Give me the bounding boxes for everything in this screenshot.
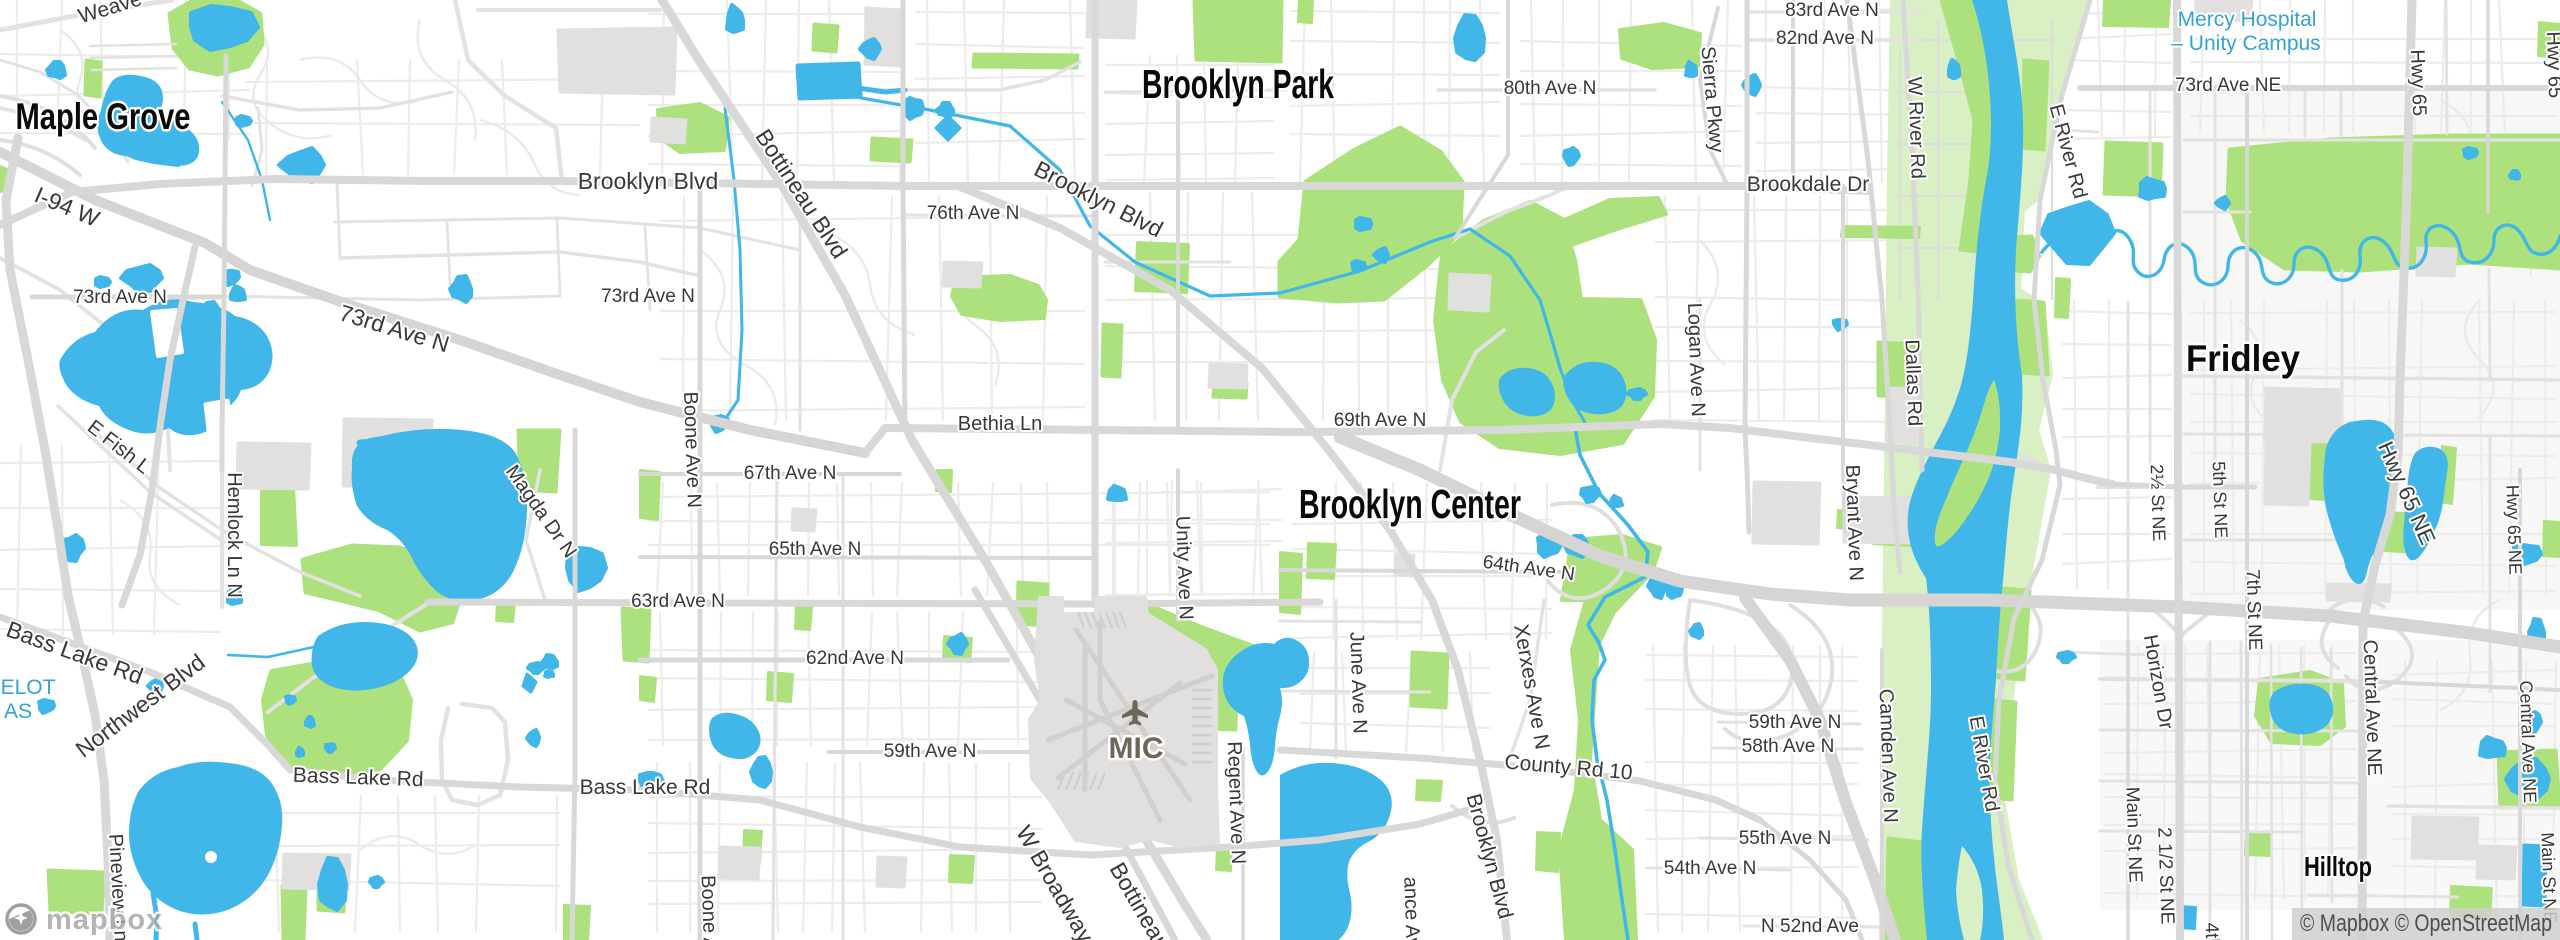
svg-text:Hemlock Ln N: Hemlock Ln N <box>223 472 245 598</box>
svg-text:Unity Ave N: Unity Ave N <box>1171 515 1197 620</box>
svg-text:– Unity Campus: – Unity Campus <box>2171 32 2320 55</box>
svg-text:73rd Ave N: 73rd Ave N <box>73 287 167 308</box>
svg-text:76th Ave N: 76th Ave N <box>927 203 1020 224</box>
svg-text:73rd Ave N: 73rd Ave N <box>601 286 695 307</box>
svg-text:4th: 4th <box>2201 922 2223 940</box>
svg-text:N 52nd Ave: N 52nd Ave <box>1761 916 1859 937</box>
svg-text:Hilltop: Hilltop <box>2304 851 2372 882</box>
svg-text:Brookdale Dr: Brookdale Dr <box>1747 173 1870 196</box>
svg-text:69th Ave N: 69th Ave N <box>1334 410 1427 431</box>
svg-text:Boone Av: Boone Av <box>697 875 722 940</box>
svg-text:Hwy 65: Hwy 65 <box>2542 31 2560 98</box>
svg-text:Brooklyn Blvd: Brooklyn Blvd <box>578 168 719 194</box>
svg-text:Mercy Hospital: Mercy Hospital <box>2178 8 2317 31</box>
svg-text:5th St NE: 5th St NE <box>2209 461 2232 539</box>
svg-text:Bass Lake Rd: Bass Lake Rd <box>580 776 711 799</box>
svg-text:55th Ave N: 55th Ave N <box>1739 828 1832 849</box>
svg-text:59th Ave N: 59th Ave N <box>1749 712 1842 733</box>
svg-text:Hwy 65: Hwy 65 <box>2406 49 2430 116</box>
svg-text:AS: AS <box>4 700 32 723</box>
svg-text:58th Ave N: 58th Ave N <box>1742 736 1835 757</box>
svg-text:ance Ave N: ance Ave N <box>1399 876 1425 940</box>
svg-text:Brooklyn Park: Brooklyn Park <box>1142 61 1334 107</box>
svg-text:2½ St NE: 2½ St NE <box>2147 464 2170 542</box>
svg-text:Central Ave NE: Central Ave NE <box>2516 680 2540 803</box>
svg-text:June Ave N: June Ave N <box>1345 631 1371 734</box>
svg-text:Logan Ave N: Logan Ave N <box>1683 302 1709 417</box>
svg-text:Fridley: Fridley <box>2186 338 2300 379</box>
svg-text:MIC: MIC <box>1109 732 1164 765</box>
svg-text:Boone Ave N: Boone Ave N <box>679 391 705 508</box>
svg-text:Main St NE: Main St NE <box>2121 786 2145 883</box>
svg-text:2 1/2 St NE: 2 1/2 St NE <box>2153 827 2177 925</box>
svg-text:67th Ave N: 67th Ave N <box>744 463 837 484</box>
svg-text:54th Ave N: 54th Ave N <box>1664 858 1757 879</box>
svg-text:Camden Ave N: Camden Ave N <box>1875 688 1902 823</box>
svg-text:62nd Ave N: 62nd Ave N <box>806 648 904 669</box>
svg-text:Brooklyn Center: Brooklyn Center <box>1299 481 1521 527</box>
svg-text:63rd Ave N: 63rd Ave N <box>631 591 725 612</box>
svg-text:65th Ave N: 65th Ave N <box>769 539 862 560</box>
svg-text:59th Ave N: 59th Ave N <box>884 741 977 762</box>
svg-text:Bryant Ave N: Bryant Ave N <box>1841 464 1867 581</box>
svg-text:82nd Ave N: 82nd Ave N <box>1776 28 1874 49</box>
svg-text:7th St NE: 7th St NE <box>2242 569 2266 651</box>
svg-text:mapbox: mapbox <box>46 904 163 936</box>
svg-text:Regent Ave N: Regent Ave N <box>1223 741 1249 865</box>
svg-text:73rd Ave NE: 73rd Ave NE <box>2175 75 2281 96</box>
svg-text:Maple Grove: Maple Grove <box>16 96 191 137</box>
svg-text:83rd Ave N: 83rd Ave N <box>1785 0 1879 21</box>
svg-text:© Mapbox © OpenStreetMap: © Mapbox © OpenStreetMap <box>2300 910 2552 937</box>
svg-text:ELOT: ELOT <box>1 676 56 699</box>
svg-text:Dallas Rd: Dallas Rd <box>1900 339 1925 426</box>
svg-text:Hwy 65 NE: Hwy 65 NE <box>2502 484 2525 575</box>
svg-text:Bethia Ln: Bethia Ln <box>958 413 1043 435</box>
svg-text:W River Rd: W River Rd <box>1903 76 1929 179</box>
svg-text:80th Ave N: 80th Ave N <box>1504 78 1597 99</box>
svg-text:Bass Lake Rd: Bass Lake Rd <box>292 764 423 792</box>
